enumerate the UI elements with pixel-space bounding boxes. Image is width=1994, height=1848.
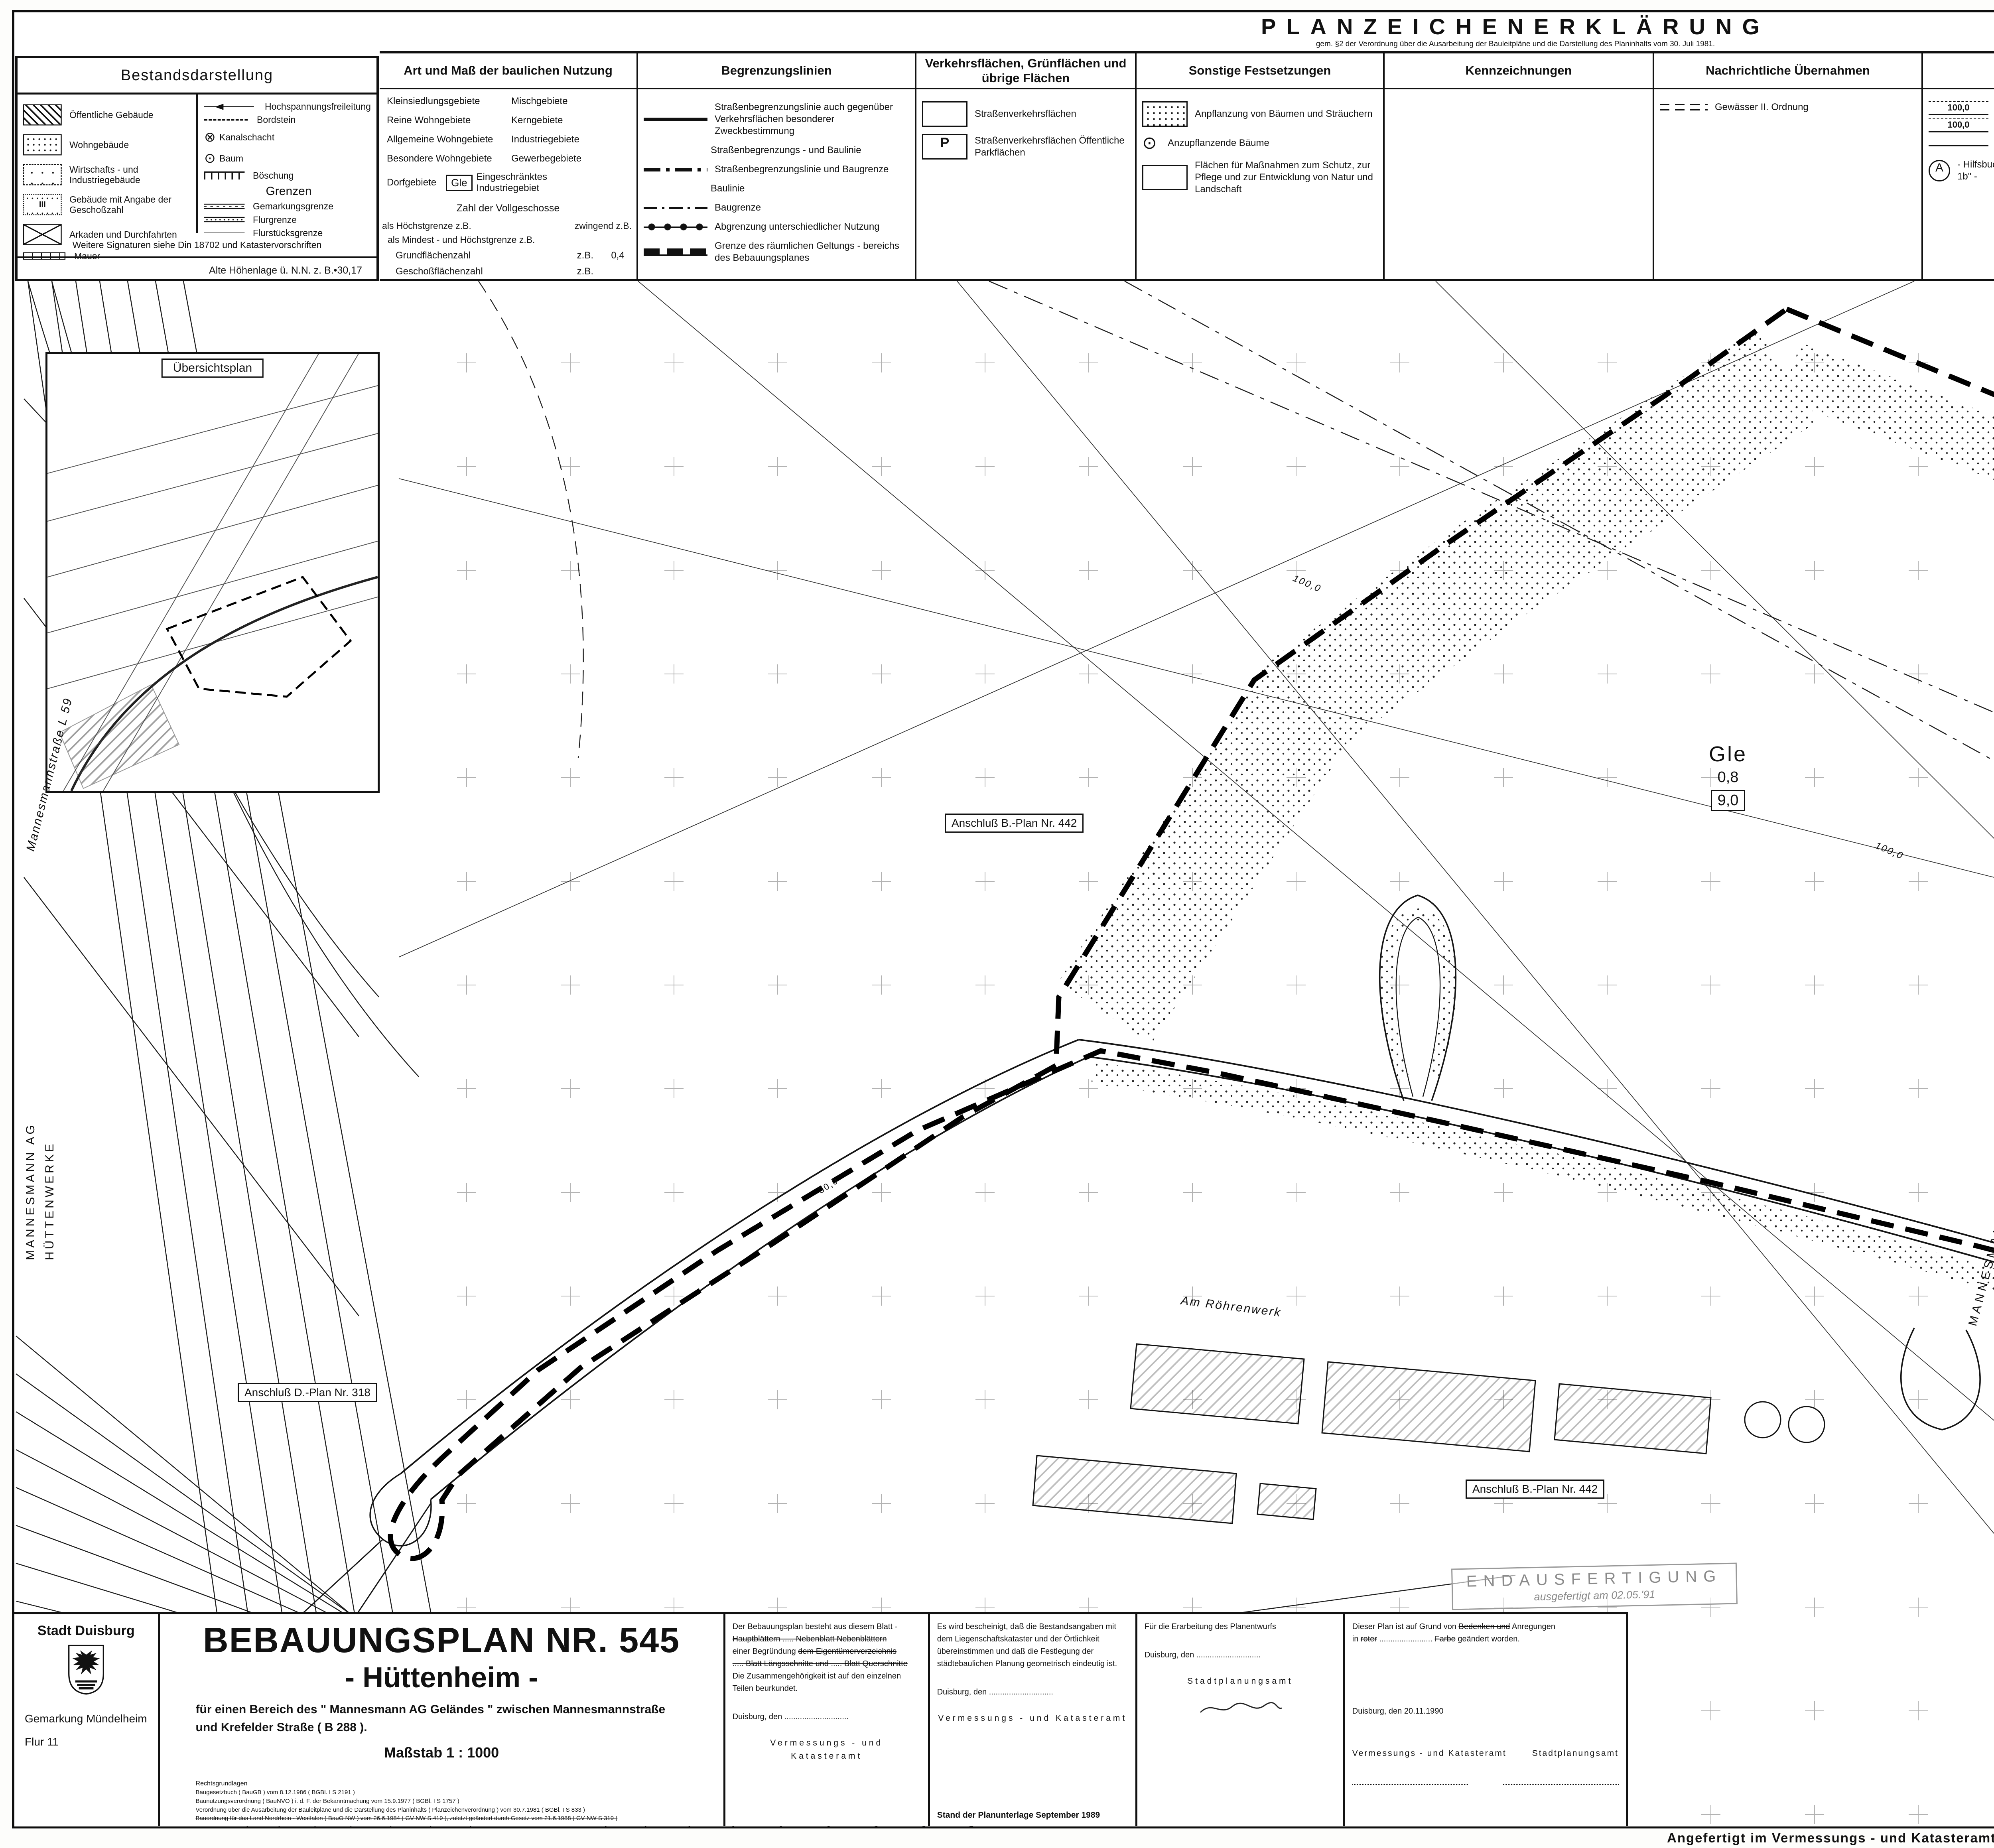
composition-box: Der Bebauungsplan besteht aus diesem Bla… xyxy=(725,1614,930,1826)
signature-scribble xyxy=(1196,1698,1284,1718)
box-text: geändert worden. xyxy=(1456,1635,1520,1643)
legend-symbol-icon xyxy=(204,233,244,234)
plan-subtitle: - Hüttenheim - xyxy=(160,1661,723,1694)
endausfertigung-stamp: ENDAUSFERTIGUNG ausgefertigt am 02.05.'9… xyxy=(1451,1563,1738,1610)
legend-item-label: Straßenbegrenzungs - und Baulinie xyxy=(711,144,861,156)
planzeichen-table: Art und Maß der baulichen Nutzung Kleins… xyxy=(380,51,1994,282)
gle-label: Eingeschränktes Industriegebiet xyxy=(477,171,572,194)
planzeichen-title: PLANZEICHENERKLÄRUNG xyxy=(977,14,1994,39)
legend-symbol-icon xyxy=(1142,165,1188,190)
legend-symbol-icon xyxy=(644,150,703,151)
draft-box: Für die Erarbeitung des Planentwurfs Dui… xyxy=(1137,1614,1345,1826)
nutzung-right: Gewerbegebiete xyxy=(511,153,632,164)
gle-code: Gle xyxy=(1709,742,1747,766)
legend-symbol-icon xyxy=(1142,101,1188,127)
legend-item: Straßenbegrenzungslinie auch gegenüber V… xyxy=(644,101,909,137)
place-date: Duisburg, den 20.11.1990 xyxy=(1352,1705,1619,1718)
box-line: Dieser Plan ist auf Grund von Bedenken u… xyxy=(1352,1621,1619,1633)
legend-item: Straßenverkehrsflächen Öffentliche Parkf… xyxy=(922,134,1129,160)
plan-description: für einen Bereich des " Mannesmann AG Ge… xyxy=(160,1694,723,1736)
bestand-legend: Bestandsdarstellung Öffentliche Gebäude … xyxy=(15,56,379,282)
place-date: Duisburg, den ..........................… xyxy=(1145,1649,1336,1661)
uebersichtsplan-drawing xyxy=(47,354,378,791)
legal-line: Baunutzungsverordnung ( BauNVO ) i. d. F… xyxy=(196,1797,714,1806)
box-text-struck: Bedenken und xyxy=(1459,1622,1510,1631)
legend-item-label: Abgrenzung unterschiedlicher Nutzung xyxy=(715,221,880,233)
dorf-row: Dorfgebiete Gle Eingeschränktes Industri… xyxy=(380,164,636,194)
vollgeschosse-label: Zahl der Vollgeschosse xyxy=(380,203,636,214)
box-text-struck: roter xyxy=(1361,1635,1377,1643)
uebersichtsplan-box: Übersichtsplan xyxy=(45,352,380,793)
bestand-title: Bestandsdarstellung xyxy=(18,58,376,95)
sonstige-items: Anpflanzung von Bäumen und Sträuchern An… xyxy=(1137,89,1383,207)
certification-box: Es wird bescheinigt, daß die Bestandsang… xyxy=(930,1614,1137,1826)
box-text: Anregungen xyxy=(1510,1622,1555,1631)
legend-item-label: Straßenbegrenzungslinie und Baugrenze xyxy=(715,164,889,175)
nutzung-right: Industriegebiete xyxy=(511,134,632,145)
col-begrenzungslinien: Begrenzungslinien Straßenbegrenzungslini… xyxy=(638,53,916,279)
plan-title-cell: BEBAUUNGSPLAN NR. 545 - Hüttenheim - für… xyxy=(160,1614,725,1826)
legend-symbol-icon xyxy=(644,207,707,209)
legend-item-label: Flurgrenze xyxy=(253,215,297,225)
column-header: Vermerke xyxy=(1923,53,1994,89)
legend-item: Flurgrenze xyxy=(204,215,373,225)
legal-line: Bauordnung für das Land Nordrhein - West… xyxy=(196,1814,714,1823)
col-nachrichtliche: Nachrichtliche Übernahmen Gewässer II. O… xyxy=(1654,53,1923,279)
box-line-struck: Hauptblättern ..... Nebenblatt Nebenblät… xyxy=(733,1633,921,1645)
legend-item-label: Straßenbegrenzungslinie auch gegenüber V… xyxy=(715,101,909,137)
box-text: ........................ xyxy=(1377,1635,1434,1643)
nutzung-right: Mischgebiete xyxy=(511,96,632,107)
legend-symbol-icon xyxy=(23,194,62,215)
gfz-label: Geschoßflächenzahl xyxy=(396,266,567,277)
grz-value: 0,4 xyxy=(604,250,632,261)
legend-item-label: Baum xyxy=(219,153,243,164)
box-text-struck: Farbe xyxy=(1434,1635,1455,1643)
scale-label: Maßstab 1 : 1000 xyxy=(160,1744,723,1761)
nutzung-left: Kleinsiedlungsgebiete xyxy=(387,96,508,107)
col-kennzeichnungen: Kennzeichnungen xyxy=(1385,53,1654,279)
legend-symbol-icon xyxy=(922,134,967,160)
legend-item: Böschung xyxy=(204,170,373,181)
grenzen-heading: Grenzen xyxy=(204,185,373,198)
gle-badge: Gle xyxy=(446,175,472,191)
title-bar: Stadt Duisburg Gemarkung Mündelheim Flur… xyxy=(14,1612,1628,1826)
legend-item-label: Straßenverkehrsflächen xyxy=(975,108,1076,120)
box-text: in xyxy=(1352,1635,1361,1643)
legend-item-label: Gemarkungsgrenze xyxy=(253,201,333,211)
col-sonstige: Sonstige Festsetzungen Anpflanzung von B… xyxy=(1137,53,1385,279)
legend-item: Straßenbegrenzungslinie und Baugrenze xyxy=(644,164,909,175)
box-line-struck: ..... Blatt Längsschnitte und ..... Blat… xyxy=(733,1658,921,1670)
hilfsbuchstabe-icon xyxy=(1929,160,1950,181)
legend-symbol-icon xyxy=(922,101,967,127)
legend-symbol-icon xyxy=(204,217,244,222)
zone-width-value: 100,0 xyxy=(1929,118,1988,132)
legend-item: Anzupflanzende Bäume xyxy=(1142,134,1377,152)
legend-item-label: - Hilfsbuchstabe - Siehe "Textliche Fest… xyxy=(1957,159,1994,183)
legend-symbol-icon xyxy=(644,118,707,121)
legend-symbol-icon xyxy=(644,248,707,256)
plan-sheet: Bestandsdarstellung Öffentliche Gebäude … xyxy=(0,0,1994,1848)
office-name: Vermessungs - und Katasteramt xyxy=(1352,1747,1507,1760)
nutzung-pairs: Kleinsiedlungsgebiete Mischgebiete Reine… xyxy=(380,89,636,164)
legend-item-label: Arkaden und Durchfahrten xyxy=(69,229,177,240)
legend-symbol-icon xyxy=(204,119,248,121)
column-header: Sonstige Festsetzungen xyxy=(1137,53,1383,89)
legend-symbol-icon xyxy=(644,168,707,171)
legend-item-label: Böschung xyxy=(253,170,294,181)
legend-symbol-icon xyxy=(204,204,244,209)
legend-item-label: Anzupflanzende Bäume xyxy=(1168,137,1269,149)
legal-title: Rechtsgrundlagen xyxy=(196,1780,248,1787)
box-line: einer Begründung dem Eigentümerverzeichn… xyxy=(733,1645,921,1658)
legend-item-label: Wohngebäude xyxy=(69,140,129,150)
bestand-right: Hochspannungsfreileitung Bordstein Kanal… xyxy=(198,95,376,233)
legend-item: Baulinie xyxy=(644,183,909,195)
legend-item: Gemarkungsgrenze xyxy=(204,201,373,211)
legend-item: 100,0 100,0 Zone der Richtfunkverbindung… xyxy=(1929,101,1994,132)
legend-item-label: Hochspannungsfreileitung xyxy=(265,101,371,112)
richtfunk-zone-icon: 100,0 100,0 xyxy=(1929,101,1988,132)
flur-label: Flur 11 xyxy=(14,1736,158,1748)
legend-item-label: Grenze des räumlichen Geltungs - bereich… xyxy=(715,240,909,264)
legend-item: Gewässer II. Ordnung xyxy=(1660,101,1916,113)
office-name: Vermessungs - und Katasteramt xyxy=(733,1737,921,1763)
gle-grz-value: 0,8 xyxy=(1709,769,1747,786)
box-line: Die Zusammengehörigkeit ist auf den einz… xyxy=(733,1670,921,1695)
legend-item: Wirtschafts - und Industriegebäude xyxy=(23,161,193,188)
legend-symbol-icon xyxy=(23,224,62,245)
mannesmann-werk-label: MANNESMANN AG xyxy=(24,1123,37,1260)
legend-item: Anpflanzung von Bäumen und Sträuchern xyxy=(1142,101,1377,127)
plan-title: BEBAUUNGSPLAN NR. 545 xyxy=(160,1620,723,1661)
place-date: Duisburg, den ..........................… xyxy=(733,1711,921,1723)
duisburg-coat-of-arms xyxy=(66,1643,106,1695)
produced-by-note: Angefertigt im Vermessungs - und Kataste… xyxy=(1667,1830,1994,1848)
grenzen-items: Gemarkungsgrenze Flurgrenze Flurstücksgr… xyxy=(204,201,373,238)
legend-item: Öffentliche Gebäude xyxy=(23,101,193,128)
legend-item-label: Flurstücksgrenze xyxy=(253,228,323,238)
planzeichen-subtitle: gem. §2 der Verordnung über die Ausarbei… xyxy=(917,40,1994,49)
legend-item-label: Gewässer II. Ordnung xyxy=(1715,101,1809,113)
zwingend-label: zwingend z.B. xyxy=(575,221,632,231)
nutzung-left: Reine Wohngebiete xyxy=(387,115,508,126)
col-nutzung: Art und Maß der baulichen Nutzung Kleins… xyxy=(380,53,638,279)
legend-symbol-icon xyxy=(644,188,703,189)
legend-item: Wohngebäude xyxy=(23,131,193,158)
huettenwerke-label: HÜTTENWERKE xyxy=(43,1141,57,1260)
box-line: Der Bebauungsplan besteht aus diesem Bla… xyxy=(733,1621,921,1633)
col-verkehrsflaechen: Verkehrsflächen, Grünflächen und übrige … xyxy=(916,53,1137,279)
legend-item-label: Bordstein xyxy=(257,114,296,125)
legend-item: Grenze des räumlichen Geltungs - bereich… xyxy=(644,240,909,264)
anschluss-label: Anschluß D.-Plan Nr. 318 xyxy=(238,1383,377,1402)
place-date: Duisburg, den ..........................… xyxy=(937,1686,1128,1698)
legend-item: Kanalschacht xyxy=(204,128,373,146)
bestand-left-items: Öffentliche Gebäude Wohngebäude Wirtscha… xyxy=(18,95,198,233)
dorf-label: Dorfgebiete xyxy=(387,177,436,188)
nutzung-left: Allgemeine Wohngebiete xyxy=(387,134,508,145)
legend-item-label: Kanalschacht xyxy=(219,132,274,142)
legend-item-label: Wirtschafts - und Industriegebäude xyxy=(69,164,193,185)
legend-symbol-icon xyxy=(23,134,62,155)
box-text: Für die Erarbeitung des Planentwurfs xyxy=(1145,1621,1336,1633)
box-text: einer Begründung xyxy=(733,1647,798,1656)
box-text-struck: dem Eigentümerverzeichnis xyxy=(798,1647,897,1656)
signature-line xyxy=(1503,1784,1619,1785)
legend-item: Straßenbegrenzungs - und Baulinie xyxy=(644,144,909,156)
legend-symbol-icon xyxy=(204,151,219,165)
grz-label: Grundflächenzahl xyxy=(396,250,567,261)
column-header: Verkehrsflächen, Grünflächen und übrige … xyxy=(916,53,1135,89)
legend-item: Abgrenzung unterschiedlicher Nutzung xyxy=(644,221,909,233)
office-name: Vermessungs - und Katasteramt xyxy=(937,1712,1128,1725)
legend-item: Baugrenze xyxy=(644,202,909,214)
city-name: Stadt Duisburg xyxy=(14,1623,158,1639)
gfz-zb: z.B. xyxy=(577,266,593,277)
legal-line: Verordnung über die Ausarbeitung der Bau… xyxy=(196,1806,714,1815)
mindestgrenze-label: als Mindest - und Höchstgrenze z.B. xyxy=(380,231,636,245)
verkehr-items: Straßenverkehrsflächen Straßenverkehrsfl… xyxy=(916,89,1135,171)
city-cell: Stadt Duisburg Gemarkung Mündelheim Flur… xyxy=(14,1614,160,1826)
legend-symbol-icon xyxy=(204,171,244,179)
legend-symbol-icon xyxy=(23,104,62,125)
grz-zb: z.B. xyxy=(577,250,593,261)
legal-lines: Baugesetzbuch ( BauGB ) vom 8.12.1986 ( … xyxy=(196,1788,714,1823)
column-header: Art und Maß der baulichen Nutzung xyxy=(380,53,636,89)
box-text: Es wird bescheinigt, daß die Bestandsang… xyxy=(937,1621,1128,1670)
zone-width-value: 100,0 xyxy=(1929,101,1988,115)
legend-item-label: Gebäude mit Angabe der Geschoßzahl xyxy=(69,194,193,215)
gemarkung-label: Gemarkung Mündelheim xyxy=(14,1712,158,1725)
legend-item: Gebäude mit Angabe der Geschoßzahl xyxy=(23,191,193,218)
box-line: in roter ........................ Farbe … xyxy=(1352,1633,1619,1645)
legend-item: Bordstein xyxy=(204,114,373,125)
legend-item-label: Öffentliche Gebäude xyxy=(69,110,154,120)
uebersichtsplan-title: Übersichtsplan xyxy=(162,359,264,378)
column-header: Nachrichtliche Übernahmen xyxy=(1654,53,1921,89)
gle-bmz-value: 9,0 xyxy=(1711,790,1746,811)
amendment-box: Dieser Plan ist auf Grund von Bedenken u… xyxy=(1345,1614,1628,1826)
office-name: Stadtplanungsamt xyxy=(1532,1747,1619,1760)
legend-symbol-icon xyxy=(204,130,219,144)
legend-symbol-icon xyxy=(1142,134,1161,152)
begrenzung-items: Straßenbegrenzungslinie auch gegenüber V… xyxy=(638,89,915,276)
nutzung-right: Kerngebiete xyxy=(511,115,632,126)
legend-item: Flurstücksgrenze xyxy=(204,228,373,238)
column-header: Begrenzungslinien xyxy=(638,53,915,89)
legal-line: Baugesetzbuch ( BauGB ) vom 8.12.1986 ( … xyxy=(196,1788,714,1797)
legend-symbol-icon xyxy=(204,106,254,107)
legend-item-label: Anpflanzung von Bäumen und Sträuchern xyxy=(1195,108,1373,120)
anschluss-label: Anschluß B.-Plan Nr. 442 xyxy=(1466,1480,1604,1499)
bestand-right-items: Hochspannungsfreileitung Bordstein Kanal… xyxy=(204,101,373,181)
anschluss-label: Anschluß B.-Plan Nr. 442 xyxy=(945,814,1084,833)
box-text: Dieser Plan ist auf Grund von xyxy=(1352,1622,1459,1631)
nachrichtlich-items: Gewässer II. Ordnung xyxy=(1654,89,1921,125)
legend-item-label: Flächen für Maßnahmen zum Schutz, zur Pf… xyxy=(1195,160,1377,195)
legend-item: Baum xyxy=(204,149,373,167)
legend-item: Flächen für Maßnahmen zum Schutz, zur Pf… xyxy=(1142,160,1377,195)
legend-item: Neuer Bordstein xyxy=(1929,140,1994,152)
legend-item: Hochspannungsfreileitung xyxy=(204,101,373,112)
legend-symbol-icon xyxy=(23,164,62,185)
legend-item-label: Straßenverkehrsflächen Öffentliche Parkf… xyxy=(975,135,1129,159)
office-name: Stadtplanungsamt xyxy=(1145,1675,1336,1688)
legend-symbol-icon xyxy=(23,252,65,260)
legend-item: Mauer xyxy=(23,251,193,261)
legend-item-label: Baugrenze xyxy=(715,202,761,214)
column-header: Kennzeichnungen xyxy=(1385,53,1653,89)
legend-item-label: Mauer xyxy=(74,251,100,261)
legend-item: - Hilfsbuchstabe - Siehe "Textliche Fest… xyxy=(1929,159,1994,183)
legend-symbol-icon xyxy=(1660,104,1708,110)
nutzung-left: Besondere Wohngebiete xyxy=(387,153,508,164)
signature-line xyxy=(1352,1784,1468,1785)
legend-symbol-icon xyxy=(644,223,707,231)
plan-state-note: Stand der Planunterlage September 1989 xyxy=(937,1809,1100,1822)
col-vermerke: Vermerke 100,0 100,0 Zone der Richtfunkv… xyxy=(1923,53,1994,279)
gle-area-designation: Gle 0,8 9,0 xyxy=(1709,742,1747,811)
legend-item-label: Baulinie xyxy=(711,183,745,195)
hoechstgrenze-label: als Höchstgrenze z.B. xyxy=(382,221,471,231)
neuer-bordstein-icon xyxy=(1929,145,1988,146)
legend-item: Straßenverkehrsflächen xyxy=(922,101,1129,127)
legal-basis: Rechtsgrundlagen Baugesetzbuch ( BauGB )… xyxy=(196,1779,714,1823)
